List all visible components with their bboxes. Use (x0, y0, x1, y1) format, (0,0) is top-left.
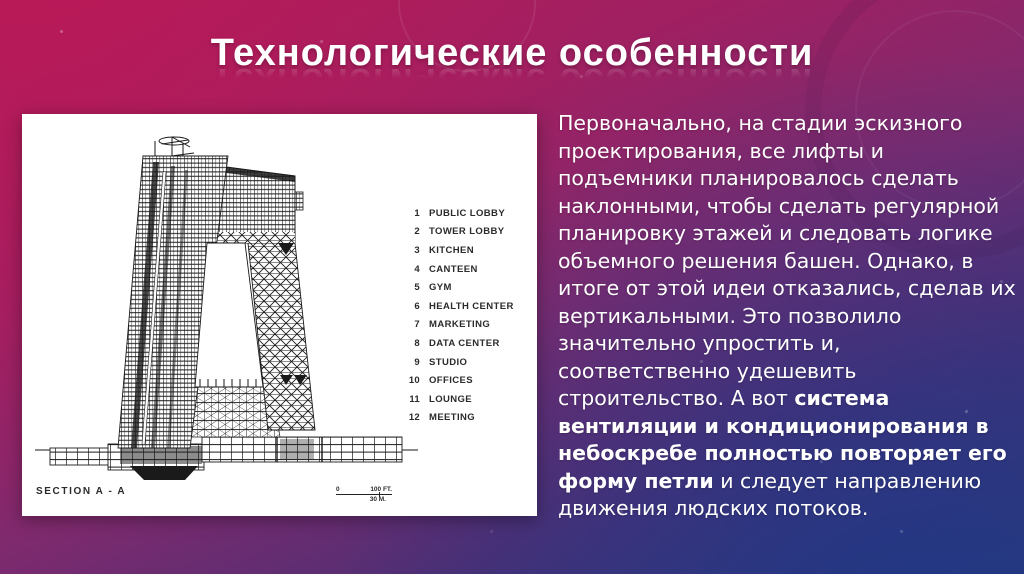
legend-number: 7 (398, 319, 420, 330)
figure-panel: 1PUBLIC LOBBY 2TOWER LOBBY 3KITCHEN 4CAN… (22, 114, 537, 516)
scale-zero: 0 (336, 486, 340, 493)
legend-item: 12MEETING (398, 409, 514, 428)
body-text-before: Первоначально, на стадии эскизного проек… (558, 111, 1016, 410)
legend-label: MEETING (429, 412, 475, 423)
legend-number: 4 (398, 264, 420, 275)
legend-label: STUDIO (429, 357, 467, 368)
slide-title: Технологические особенности (0, 32, 1024, 75)
figure-legend: 1PUBLIC LOBBY 2TOWER LOBBY 3KITCHEN 4CAN… (398, 204, 514, 427)
legend-label: LOUNGE (429, 394, 472, 405)
legend-label: HEALTH CENTER (429, 301, 514, 312)
legend-number: 12 (398, 412, 420, 423)
legend-number: 8 (398, 338, 420, 349)
legend-number: 2 (398, 226, 420, 237)
legend-label: KITCHEN (429, 245, 474, 256)
legend-number: 9 (398, 357, 420, 368)
legend-label: OFFICES (429, 375, 473, 386)
legend-label: GYM (429, 282, 452, 293)
slide: Технологические особенности (0, 0, 1024, 574)
section-label: SECTION A - A (36, 486, 126, 497)
legend-item: 10OFFICES (398, 371, 514, 390)
legend-item: 7MARKETING (398, 316, 514, 335)
legend-item: 3KITCHEN (398, 241, 514, 260)
scale-meters: 30 M. (336, 496, 392, 503)
legend-item: 11LOUNGE (398, 390, 514, 409)
scale-line (336, 494, 392, 495)
legend-number: 3 (398, 245, 420, 256)
body-paragraph: Первоначально, на стадии эскизного проек… (558, 110, 1018, 523)
legend-number: 6 (398, 301, 420, 312)
legend-item: 2TOWER LOBBY (398, 223, 514, 242)
legend-item: 9STUDIO (398, 353, 514, 372)
scale-feet: 100 FT. (370, 486, 392, 493)
legend-item: 8DATA CENTER (398, 334, 514, 353)
legend-item: 1PUBLIC LOBBY (398, 204, 514, 223)
legend-label: PUBLIC LOBBY (429, 208, 505, 219)
legend-item: 6HEALTH CENTER (398, 297, 514, 316)
legend-item: 4CANTEEN (398, 260, 514, 279)
legend-label: DATA CENTER (429, 338, 500, 349)
legend-label: MARKETING (429, 319, 490, 330)
legend-number: 5 (398, 282, 420, 293)
legend-label: CANTEEN (429, 264, 478, 275)
legend-number: 10 (398, 375, 420, 386)
legend-number: 11 (398, 394, 420, 405)
scale-bar: 0 100 FT. 30 M. (336, 486, 392, 503)
legend-number: 1 (398, 208, 420, 219)
legend-item: 5GYM (398, 278, 514, 297)
legend-label: TOWER LOBBY (429, 226, 504, 237)
